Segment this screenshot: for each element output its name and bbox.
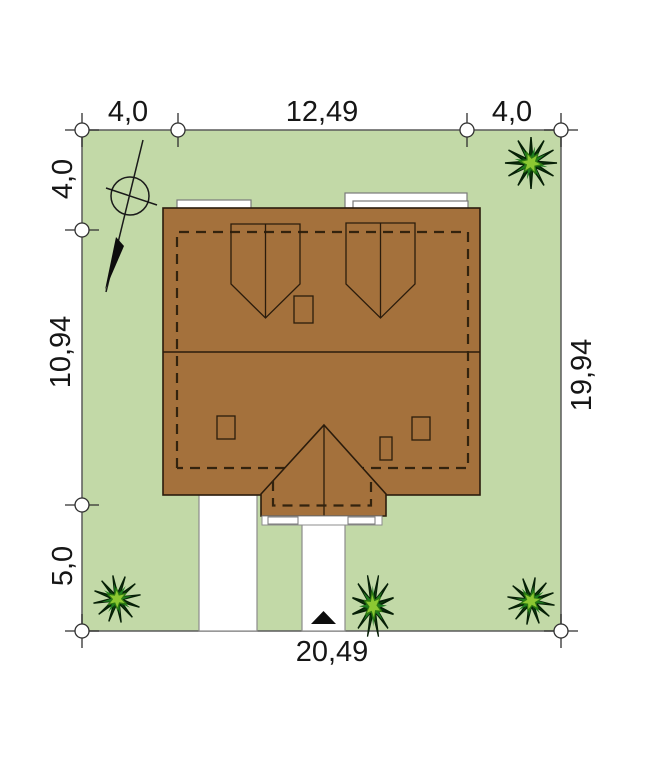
dimension-label-left-top: 4,0 [47,159,79,199]
dimension-label-top-left: 4,0 [108,96,148,128]
chimney [294,296,313,323]
skylight-left [217,416,235,439]
dimension-label-left-bottom: 5,0 [47,546,79,586]
dimension-label-top-center: 12,49 [286,96,359,128]
house-roof [163,208,480,516]
skylight-right [412,417,430,440]
dimension-label-top-right: 4,0 [492,96,532,128]
driveway [199,495,257,631]
dimension-label-bottom: 20,49 [296,636,369,668]
site-plan-drawing: 4,0 12,49 4,0 4,0 10,94 5,0 19,94 20,49 [0,0,650,768]
entrance-steps [262,516,382,525]
dimension-label-right: 19,94 [566,339,598,412]
site-plan-page: 4,0 12,49 4,0 4,0 10,94 5,0 19,94 20,49 [0,0,650,768]
vent-stack [380,437,392,460]
dimension-label-left-center: 10,94 [45,316,77,389]
